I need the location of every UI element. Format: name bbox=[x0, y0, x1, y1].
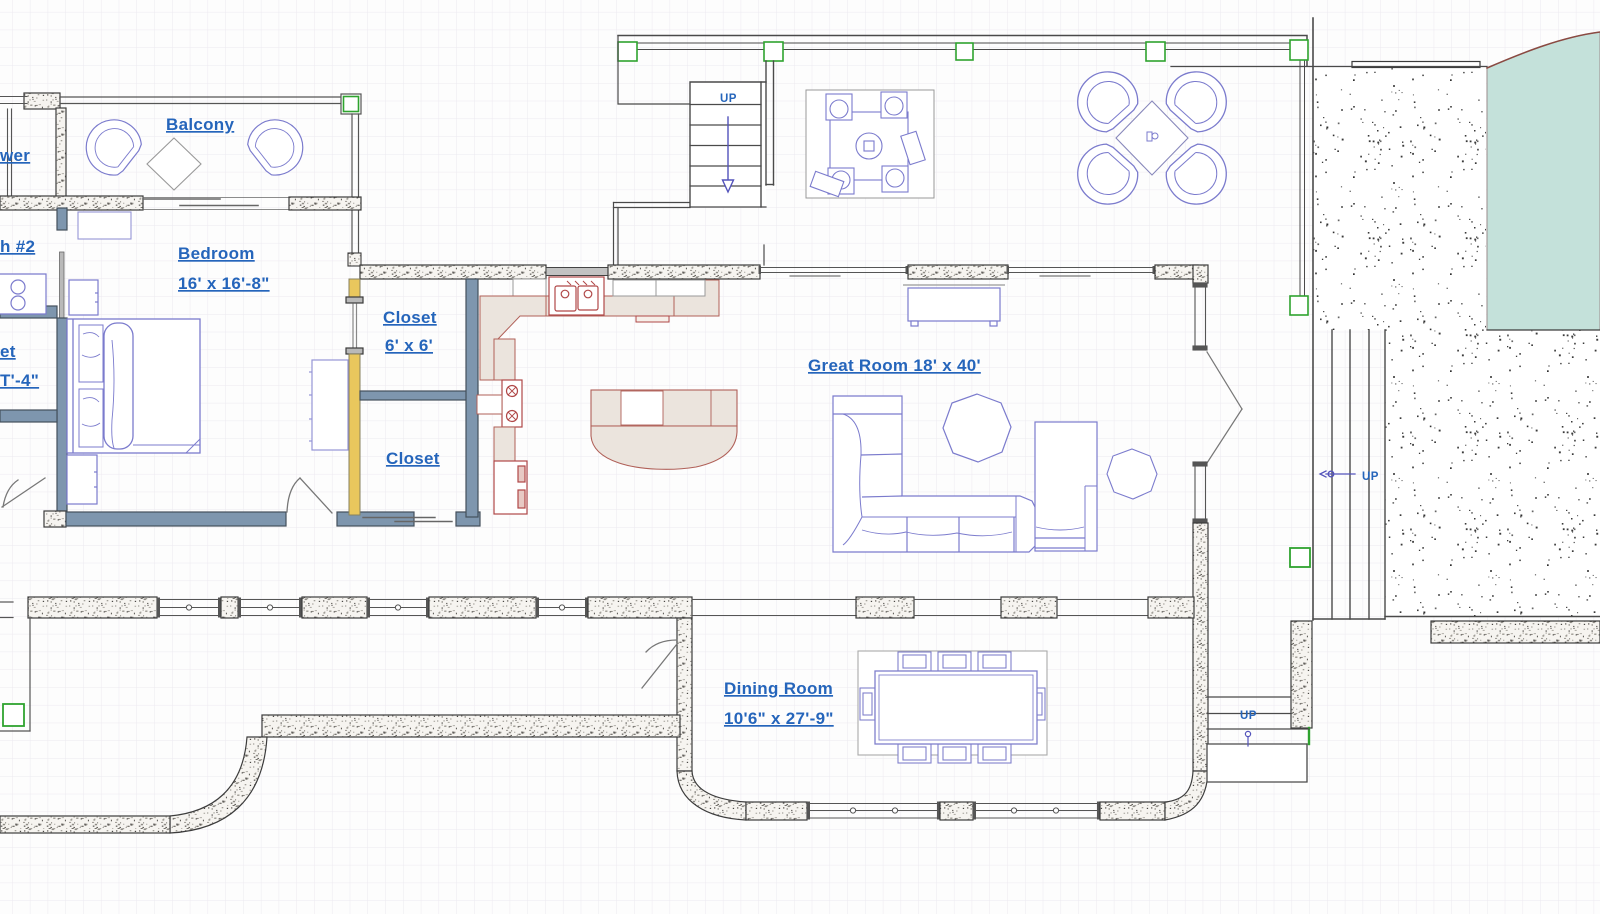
svg-text:UP: UP bbox=[1362, 471, 1379, 483]
svg-text:6' x 6': 6' x 6' bbox=[385, 336, 433, 355]
svg-text:Closet: Closet bbox=[386, 449, 440, 468]
svg-text:T'-4": T'-4" bbox=[0, 371, 39, 390]
svg-text:Great Room 18' x 40': Great Room 18' x 40' bbox=[808, 356, 981, 375]
svg-text:et: et bbox=[0, 342, 16, 361]
svg-text:Closet: Closet bbox=[383, 308, 437, 327]
svg-text:Dining Room: Dining Room bbox=[724, 679, 833, 698]
svg-text:Bedroom: Bedroom bbox=[178, 244, 255, 263]
svg-text:16' x 16'-8": 16' x 16'-8" bbox=[178, 274, 270, 293]
svg-text:Balcony: Balcony bbox=[166, 115, 234, 134]
svg-text:wer: wer bbox=[0, 146, 30, 165]
svg-text:10'6" x 27'-9": 10'6" x 27'-9" bbox=[724, 709, 834, 728]
svg-text:h #2: h #2 bbox=[0, 237, 35, 256]
svg-text:UP: UP bbox=[720, 93, 737, 105]
svg-text:UP: UP bbox=[1240, 710, 1257, 722]
